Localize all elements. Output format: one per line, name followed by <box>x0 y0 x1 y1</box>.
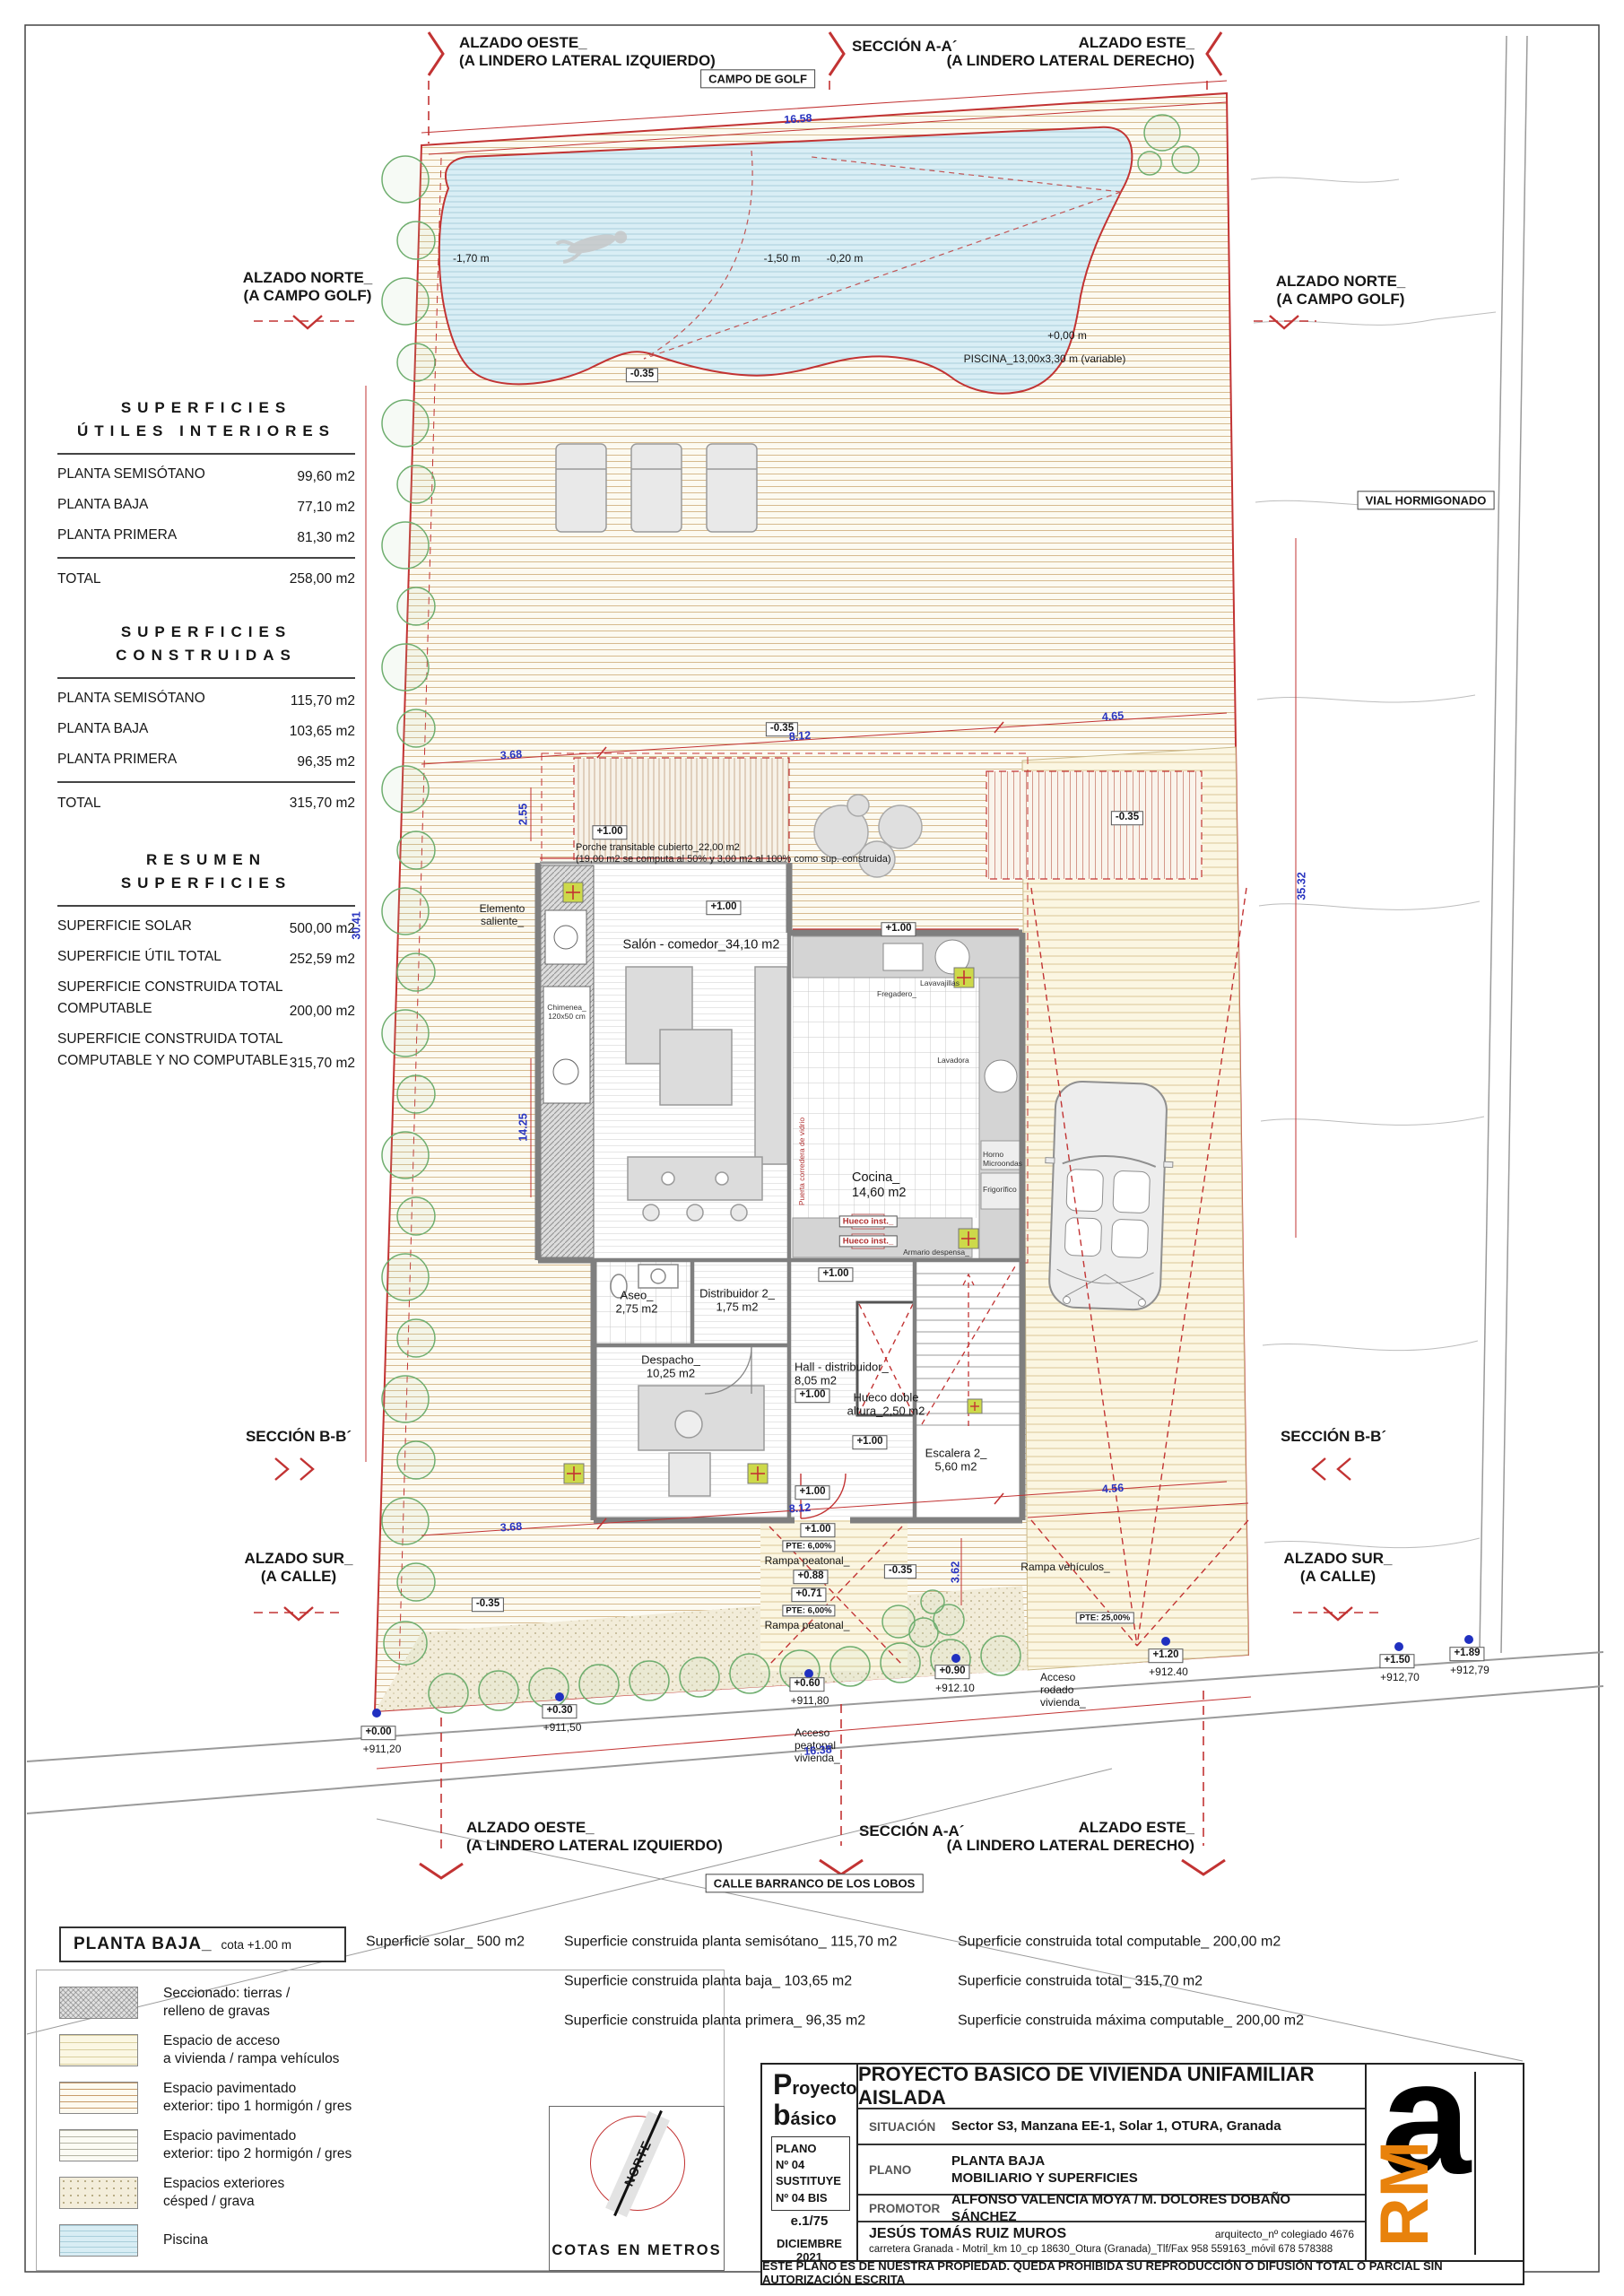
legend-item-pav2: Espacio pavimentadoexterior: tipo 2 horm… <box>59 2121 352 2169</box>
room-cocina-floor <box>793 978 979 1218</box>
building <box>538 858 1022 1520</box>
project-title: PROYECTO BASICO DE VIVIENDA UNIFAMILIAR … <box>858 2065 1365 2109</box>
legend-item-cesped: Espacios exteriorescésped / grava <box>59 2169 352 2216</box>
architect-license: arquitecto_nº colegiado 4676 <box>1215 2228 1354 2240</box>
plano-line1: PLANTA BAJA <box>951 2152 1138 2170</box>
table-row: SUPERFICIE CONSTRUIDA TOTALCOMPUTABLE Y … <box>57 1029 355 1072</box>
table-row: PLANTA SEMISÓTANO99,60 m2 <box>57 464 355 485</box>
legend-item-acceso: Espacio de accesoa vivienda / rampa vehí… <box>59 2026 352 2074</box>
pergola-area <box>986 771 1202 879</box>
car <box>1040 1081 1176 1311</box>
legend-swatch-seccionado <box>59 1987 138 2019</box>
promotor-label: PROMOTOR <box>869 2202 951 2215</box>
project-type: Proyecto básico <box>762 2065 856 2130</box>
stairs <box>916 1262 1020 1518</box>
table-row: PLANTA BAJA103,65 m2 <box>57 718 355 740</box>
plan-number-box: PLANONº 04SUSTITUYENº 04 BIS <box>771 2136 850 2211</box>
ownership-disclaimer: ESTE PLANO ES DE NUESTRA PROPIEDAD. QUED… <box>762 2260 1523 2283</box>
compass-box: NORTE COTAS EN METROS <box>549 2106 725 2271</box>
table-row: PLANTA BAJA77,10 m2 <box>57 494 355 516</box>
superficies-utiles: SUPERFICIESÚTILES INTERIORESPLANTA SEMIS… <box>57 396 355 596</box>
project-type-line1: Proyecto <box>773 2070 856 2100</box>
drawing-sheet: ALZADO OESTE_(A LINDERO LATERAL IZQUIERD… <box>0 0 1624 2296</box>
legend-item-pav1: Espacio pavimentadoexterior: tipo 1 horm… <box>59 2074 352 2121</box>
legend-title: PLANTA BAJA_ cota +1.00 m <box>59 1926 346 1962</box>
table-row: SUPERFICIE ÚTIL TOTAL252,59 m2 <box>57 946 355 968</box>
project-type-line2: básico <box>773 2100 856 2131</box>
pool <box>439 127 1133 394</box>
table-row: PLANTA PRIMERA96,35 m2 <box>57 749 355 770</box>
promotor-value: ALFONSO VALENCIA MOYA / M. DOLORES DOBAÑ… <box>951 2191 1354 2226</box>
legend-swatch-piscina <box>59 2224 138 2257</box>
contour-lines <box>1251 178 1496 1548</box>
legend-title-text: PLANTA BAJA_ <box>74 1935 213 1954</box>
superficies-construidas: SUPERFICIESCONSTRUIDASPLANTA SEMISÓTANO1… <box>57 621 355 821</box>
title-block: Proyecto básico PLANONº 04SUSTITUYENº 04… <box>760 2063 1524 2285</box>
table-total-row: TOTAL258,00 m2 <box>57 571 355 587</box>
legend-swatch-acceso <box>59 2034 138 2066</box>
table-row: PLANTA PRIMERA81,30 m2 <box>57 525 355 546</box>
room-distribuidor-floor <box>694 1262 787 1344</box>
architect-name: JESÚS TOMÁS RUIZ MUROS <box>869 2226 1066 2242</box>
legend-swatch-pav1 <box>59 2082 138 2114</box>
logo-arq-initial: a <box>1522 2151 1523 2161</box>
pedestrian-ramp-area <box>760 1520 908 1671</box>
title-block-left: Proyecto básico PLANONº 04SUSTITUYENº 04… <box>762 2065 858 2262</box>
table-row: PLANTA SEMISÓTANO115,70 m2 <box>57 688 355 709</box>
plano-line2: MOBILIARIO Y SUPERFICIES <box>951 2170 1138 2187</box>
porch-area <box>574 758 789 864</box>
situacion-label: SITUACIÓN <box>869 2120 951 2134</box>
cotas-label: COTAS EN METROS <box>550 2242 724 2259</box>
logo-divider <box>1474 2072 1476 2255</box>
legend-swatch-pav2 <box>59 2129 138 2161</box>
rm-arquitectos-logo: a RM RUIZ MUROS a rquitectos <box>1365 2065 1523 2262</box>
legend-cota-text: cota +1.00 m <box>221 1938 291 1952</box>
legend: Seccionado: tierras /relleno de gravasEs… <box>59 1979 352 2264</box>
table-row: SUPERFICIE SOLAR500,00 m2 <box>57 916 355 937</box>
legend-item-seccionado: Seccionado: tierras /relleno de gravas <box>59 1979 352 2026</box>
legend-item-piscina: Piscina <box>59 2216 352 2264</box>
north-compass-icon: NORTE <box>590 2116 685 2211</box>
sun-loungers <box>556 444 757 532</box>
scale-label: e.1/75 <box>762 2213 856 2229</box>
title-block-main: PROYECTO BASICO DE VIVIENDA UNIFAMILIAR … <box>858 2065 1367 2262</box>
logo-rm-glyph: RM <box>1371 2141 1439 2247</box>
table-total-row: TOTAL315,70 m2 <box>57 796 355 812</box>
architect-address: carretera Granada - Motril_km 10_cp 1863… <box>869 2244 1354 2255</box>
plano-label: PLANO <box>869 2163 951 2177</box>
situacion-value: Sector S3, Manzana EE-1, Solar 1, OTURA,… <box>951 2118 1281 2135</box>
logo-names: RUIZ MUROS a rquitectos <box>1522 2065 1523 2262</box>
legend-swatch-cesped <box>59 2177 138 2209</box>
table-row: SUPERFICIE CONSTRUIDA TOTALCOMPUTABLE200… <box>57 977 355 1020</box>
resumen-superficies: RESUMENSUPERFICIESSUPERFICIE SOLAR500,00… <box>57 848 355 1081</box>
